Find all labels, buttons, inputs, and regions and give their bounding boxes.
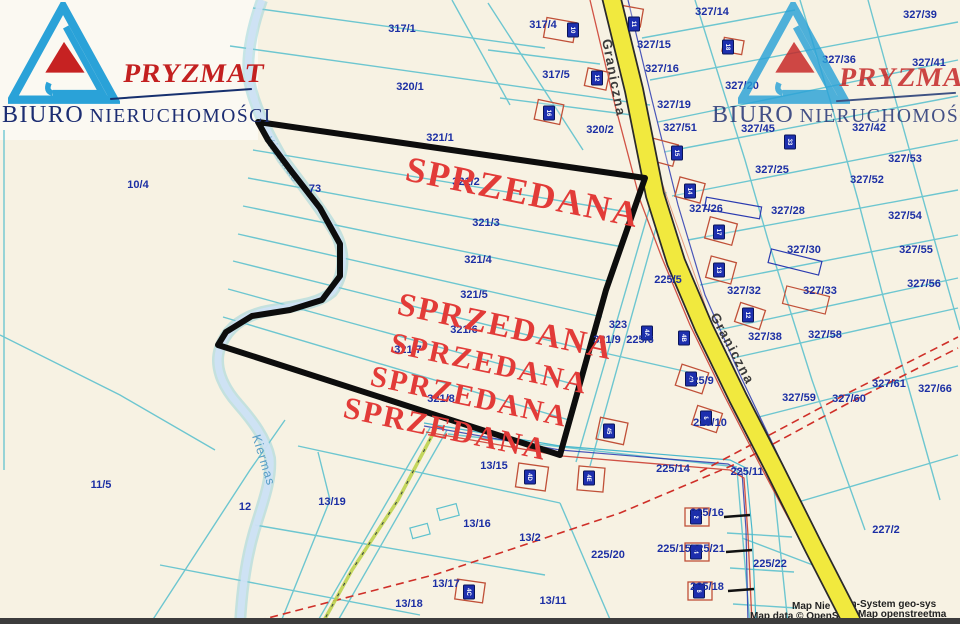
parcel-label: 327/14	[695, 6, 730, 18]
house-address-plate: 4E	[584, 471, 595, 485]
parcel-label: 321/3	[472, 217, 500, 229]
address-plate-number: 15	[673, 150, 679, 157]
parcel-label: 327/41	[912, 57, 946, 69]
house-address-plate: 18	[723, 40, 734, 54]
house-address-plate: 12	[743, 308, 754, 322]
parcel-label: 13/16	[463, 518, 491, 530]
parcel-label: 225/14	[656, 463, 691, 475]
address-plate-number: 13	[715, 267, 721, 274]
parcel-label: 327/53	[888, 153, 922, 165]
scan-edge-band	[0, 618, 960, 624]
address-plate-number: 4D	[526, 473, 532, 481]
house-address-plate: 13	[714, 263, 725, 277]
parcel-label: 327/19	[657, 99, 691, 111]
parcel-label: 327/26	[689, 203, 723, 215]
address-plate-number: 14	[686, 188, 692, 195]
parcel-label: 323	[609, 319, 627, 331]
house-address-plate: 4D	[525, 470, 536, 484]
parcel-label: 13/11	[540, 595, 567, 607]
address-plate-number: 18	[724, 44, 730, 51]
house-address-plate: 14	[685, 184, 696, 198]
parcel-label: 13/17	[432, 578, 460, 590]
parcel-label: 327/25	[755, 164, 789, 176]
address-plate-number: 45	[605, 428, 611, 435]
parcel-label: 327/33	[803, 285, 837, 297]
parcel-label: 227/2	[872, 524, 900, 536]
parcel-label: 225/15	[657, 543, 691, 555]
house-address-plate: 11	[629, 17, 640, 31]
cadastral-map-canvas: KiermasKiermas Map Nieen-System geo-sysM…	[0, 0, 960, 624]
parcel-label: 327/54	[888, 210, 923, 222]
parcel-label: 225/18	[690, 581, 724, 593]
house-address-plate: 4B	[679, 331, 690, 345]
parcel-label: 320/2	[586, 124, 614, 136]
address-plate-number: 4E	[585, 474, 591, 481]
parcel-label: 225/6	[626, 334, 654, 346]
parcel-label: 327/66	[918, 383, 952, 395]
parcel-label: 317/4	[529, 19, 557, 31]
parcel-label: 225/16	[690, 507, 724, 519]
parcel-label: 327/58	[808, 329, 842, 341]
parcel-label: 317/5	[542, 69, 570, 81]
parcel-label: 327/16	[645, 63, 679, 75]
parcel-label: 320/1	[396, 81, 424, 93]
parcel-label: 13/19	[318, 496, 346, 508]
parcel-label: 225/10	[693, 417, 727, 429]
parcel-label: 12	[239, 501, 251, 513]
address-plate-number: 12	[593, 75, 599, 82]
parcel-label: 73	[309, 183, 321, 195]
parcel-label: 225/9	[686, 375, 714, 387]
parcel-label: 317/1	[388, 23, 416, 35]
address-plate-number: 16	[545, 110, 551, 117]
parcel-label: 327/15	[637, 39, 671, 51]
parcel-label: 327/32	[727, 285, 761, 297]
parcel-label: 225/20	[591, 549, 625, 561]
parcel-label: 13/18	[395, 598, 423, 610]
address-plate-number: 4C	[465, 588, 471, 596]
parcel-label: 327/51	[663, 122, 697, 134]
house-address-plate: 4C	[464, 585, 475, 599]
house-address-plate: 17	[714, 225, 725, 239]
house-address-plate: 16	[544, 106, 555, 120]
house-address-plate: 12	[592, 71, 603, 85]
parcel-label: 13/15	[480, 460, 508, 472]
parcel-label: 10/4	[127, 179, 149, 191]
parcel-label: 327/61	[872, 378, 906, 390]
parcel-label: 327/28	[771, 205, 805, 217]
parcel-label: 11/5	[91, 479, 112, 491]
parcel-label: 327/56	[907, 278, 941, 290]
parcel-label: 327/38	[748, 331, 782, 343]
parcel-label: 327/20	[725, 80, 759, 92]
parcel-label: 327/42	[852, 122, 886, 134]
house-address-plate: 33	[785, 135, 796, 149]
parcel-label: 225/11	[730, 466, 763, 478]
address-plate-number: 11	[630, 21, 636, 28]
parcel-label: 225/22	[753, 558, 787, 570]
parcel-label: 327/36	[822, 54, 856, 66]
parcel-label: 327/45	[741, 123, 775, 135]
house-address-plate: 10	[568, 23, 579, 37]
parcel-label: 13/2	[519, 532, 540, 544]
parcel-label: 327/55	[899, 244, 933, 256]
parcel-label: 321/1	[426, 132, 454, 144]
parcel-label: 327/30	[787, 244, 821, 256]
address-plate-number: 4B	[680, 334, 686, 342]
parcel-label: 327/39	[903, 9, 937, 21]
parcel-label: 321/4	[464, 254, 492, 266]
house-address-plate: 45	[604, 424, 615, 438]
address-plate-number: 17	[715, 229, 721, 236]
parcel-label: 327/59	[782, 392, 816, 404]
parcel-label: 225/21	[691, 543, 725, 555]
house-address-plate: 15	[672, 146, 683, 160]
parcel-label: 327/60	[832, 393, 866, 405]
parcel-label: 225/5	[654, 274, 682, 286]
parcel-label: 327/52	[850, 174, 884, 186]
address-plate-number: 10	[569, 27, 575, 34]
address-plate-number: 33	[786, 139, 792, 146]
address-plate-number: 12	[744, 312, 750, 319]
logo-backdrop	[0, 0, 258, 140]
